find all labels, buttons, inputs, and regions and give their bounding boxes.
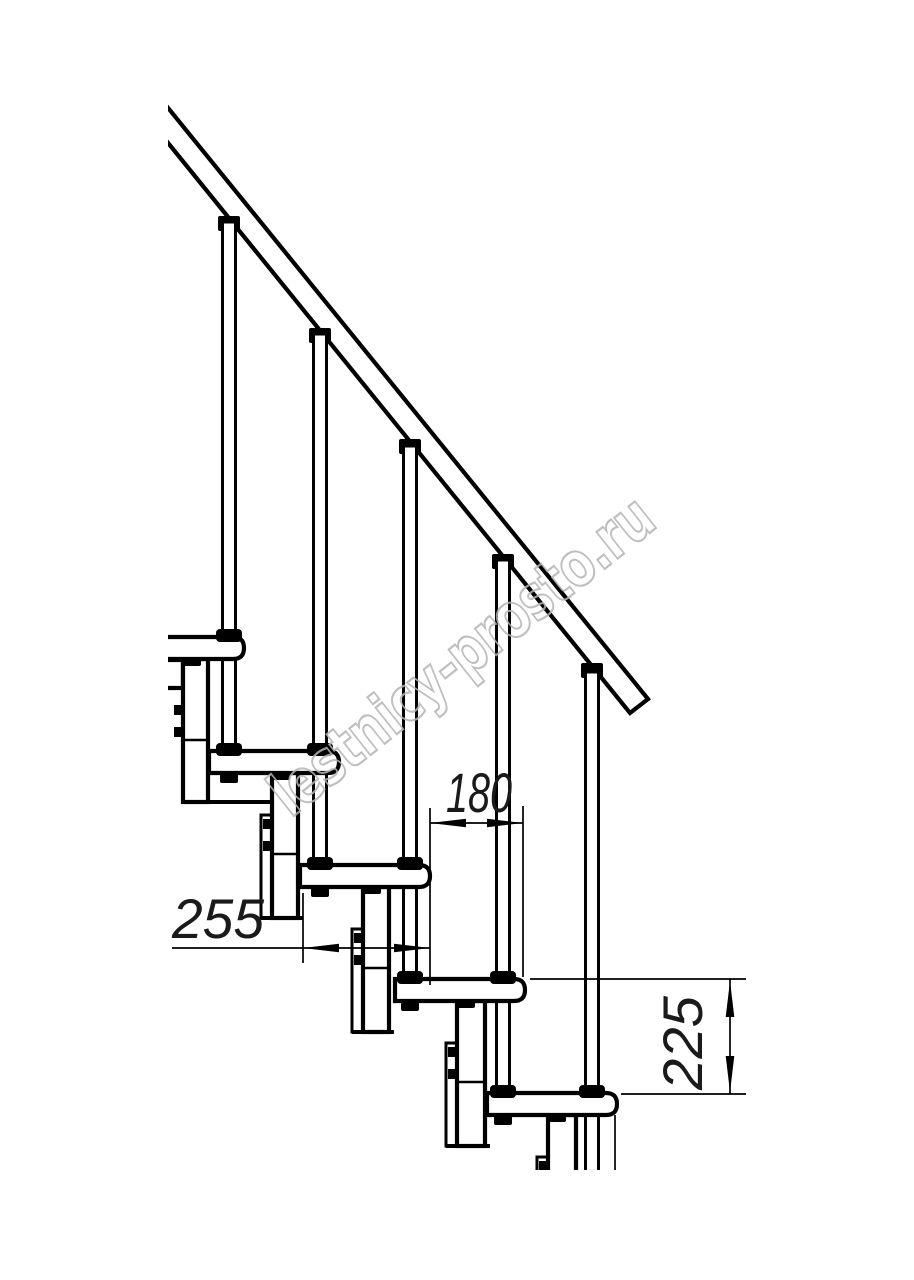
module-bolt	[174, 727, 183, 737]
module-bolt	[448, 1047, 457, 1057]
arrowhead-left	[303, 944, 339, 953]
baluster-collar	[216, 629, 242, 642]
module-box	[548, 1115, 576, 1182]
staircase-drawing-page: 180 255 225 lestnicy-prosto.ru	[0, 0, 914, 1280]
baluster-1	[218, 216, 240, 751]
baluster-rod	[223, 222, 236, 751]
baluster-collar	[579, 1085, 605, 1098]
module-bolt	[174, 705, 183, 715]
module-box	[363, 887, 389, 1032]
arrowhead-up	[726, 981, 735, 1017]
module-3	[352, 887, 394, 1032]
fastening-nut	[220, 774, 238, 783]
module-bolt	[448, 1069, 457, 1079]
dimension-step-run: 180	[430, 761, 523, 827]
baluster-foot-flange	[216, 743, 242, 756]
module-1	[158, 659, 274, 802]
fastening-nut	[401, 1002, 419, 1011]
module-box	[183, 659, 208, 802]
dimension-value-180: 180	[446, 761, 512, 824]
baluster-foot-flange	[397, 971, 423, 984]
module-bolt	[263, 841, 272, 851]
baluster-collar	[490, 971, 516, 984]
fastening-nut	[311, 888, 329, 897]
module-4	[446, 1001, 490, 1146]
baluster-foot-flange	[307, 857, 333, 870]
module-box	[457, 1001, 485, 1146]
module-bolt	[263, 819, 272, 829]
module-bolt	[354, 933, 363, 943]
arrowhead-down	[726, 1056, 735, 1092]
module-back-plate	[158, 660, 183, 688]
fastening-nut	[494, 1116, 512, 1125]
dimension-riser-height: 225	[651, 979, 734, 1094]
staircase-elevation-drawing: 180 255 225 lestnicy-prosto.ru	[0, 0, 914, 1280]
module-bolt	[354, 955, 363, 965]
baluster-foot-flange	[490, 1085, 516, 1098]
dimension-value-225: 225	[651, 995, 714, 1091]
dimension-value-255: 255	[171, 887, 265, 950]
baluster-collar	[397, 857, 423, 870]
module-5	[537, 1115, 615, 1182]
stair-structure	[158, 98, 648, 1182]
module-bolt	[539, 1161, 548, 1171]
